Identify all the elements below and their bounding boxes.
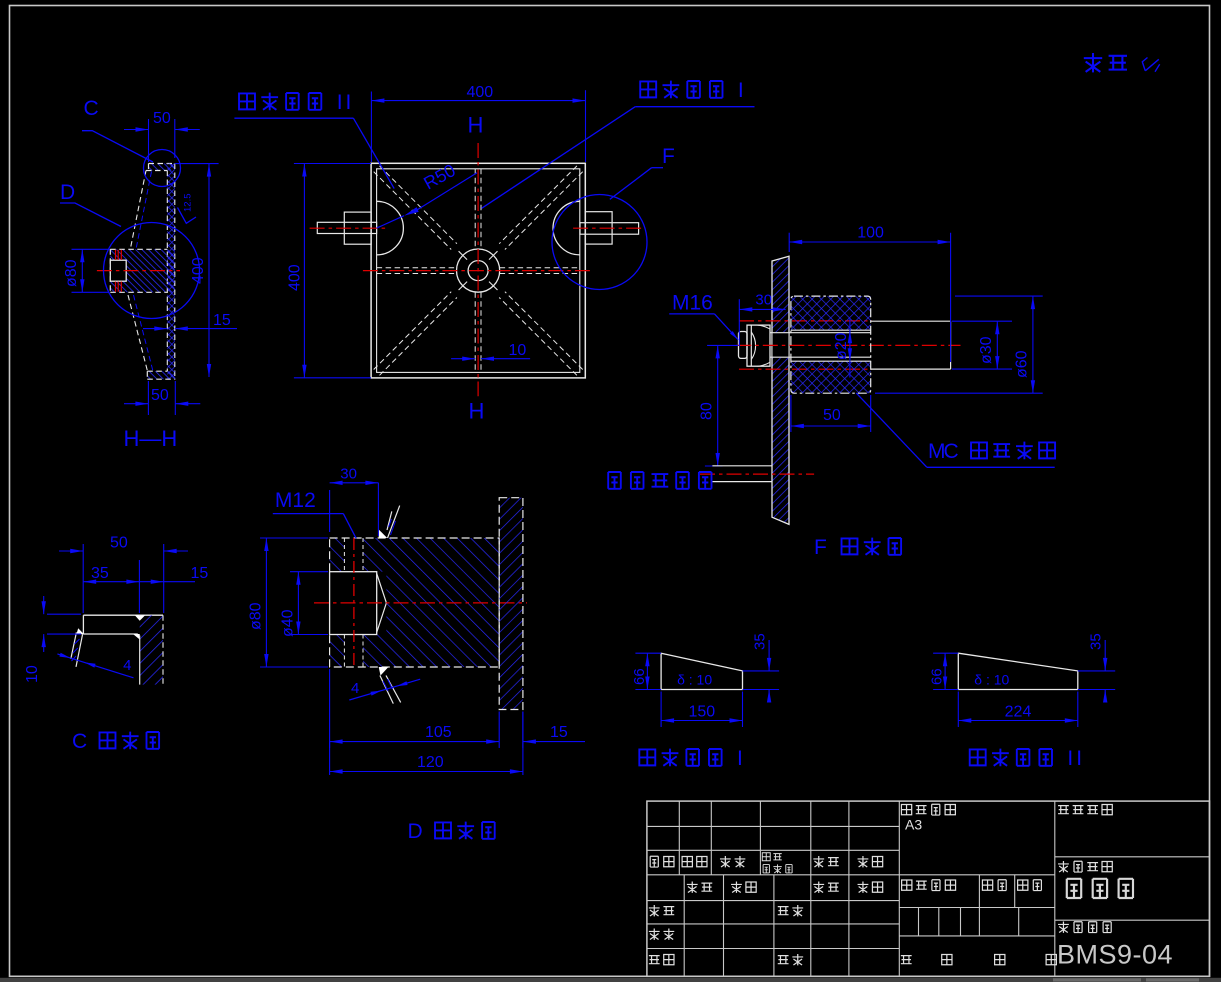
svg-text:ø60: ø60 bbox=[1014, 350, 1031, 378]
svg-text:I: I bbox=[1076, 747, 1082, 770]
svg-text:δ : 10: δ : 10 bbox=[974, 672, 1009, 688]
svg-text:100: 100 bbox=[857, 225, 884, 242]
svg-text:15: 15 bbox=[550, 724, 568, 741]
svg-text:105: 105 bbox=[425, 724, 452, 741]
svg-text:400: 400 bbox=[190, 257, 207, 284]
svg-text:F: F bbox=[662, 145, 675, 168]
svg-text:δ : 10: δ : 10 bbox=[677, 672, 712, 688]
svg-text:I: I bbox=[738, 79, 744, 102]
svg-text:50: 50 bbox=[110, 535, 128, 552]
svg-text:12.5: 12.5 bbox=[183, 194, 194, 213]
svg-text:50: 50 bbox=[151, 387, 169, 404]
svg-text:I: I bbox=[346, 91, 352, 114]
svg-text:35: 35 bbox=[1088, 633, 1105, 650]
svg-text:50: 50 bbox=[153, 110, 171, 127]
svg-text:ø80: ø80 bbox=[248, 602, 265, 630]
svg-text:50: 50 bbox=[823, 407, 841, 424]
svg-text:D: D bbox=[408, 820, 423, 843]
svg-text:30: 30 bbox=[340, 466, 357, 483]
svg-text:66: 66 bbox=[631, 668, 648, 685]
svg-text:D: D bbox=[60, 181, 75, 204]
svg-text:15: 15 bbox=[191, 565, 209, 582]
svg-text:F: F bbox=[814, 536, 827, 559]
svg-text:120: 120 bbox=[417, 754, 444, 771]
svg-text:4: 4 bbox=[123, 657, 131, 674]
svg-text:A3: A3 bbox=[905, 817, 922, 833]
svg-text:ø80: ø80 bbox=[63, 259, 80, 287]
svg-text:ø30: ø30 bbox=[978, 336, 995, 364]
svg-text:10: 10 bbox=[24, 665, 41, 683]
svg-text:BMS9-04: BMS9-04 bbox=[1057, 940, 1173, 970]
svg-text:15: 15 bbox=[213, 312, 231, 329]
svg-text:10: 10 bbox=[509, 342, 527, 359]
svg-text:150: 150 bbox=[688, 704, 715, 721]
svg-text:M16: M16 bbox=[672, 292, 713, 315]
svg-text:I: I bbox=[337, 91, 343, 114]
svg-text:I: I bbox=[1067, 747, 1073, 770]
svg-text:C: C bbox=[72, 730, 87, 753]
svg-text:35: 35 bbox=[91, 565, 109, 582]
svg-text:H—H: H—H bbox=[124, 426, 178, 451]
svg-text:35: 35 bbox=[752, 633, 769, 650]
svg-text:ø20: ø20 bbox=[833, 332, 850, 360]
svg-text:4: 4 bbox=[351, 680, 359, 697]
svg-text:400: 400 bbox=[287, 264, 304, 291]
svg-text:C: C bbox=[84, 97, 99, 120]
svg-text:30: 30 bbox=[755, 292, 772, 309]
svg-text:80: 80 bbox=[699, 402, 716, 420]
svg-text:I: I bbox=[737, 747, 743, 770]
svg-text:400: 400 bbox=[467, 84, 494, 101]
svg-text:H: H bbox=[468, 113, 484, 138]
svg-text:C: C bbox=[944, 440, 959, 463]
svg-text:M12: M12 bbox=[275, 489, 316, 512]
svg-text:H: H bbox=[469, 399, 485, 424]
svg-text:66: 66 bbox=[929, 668, 946, 685]
svg-text:ø40: ø40 bbox=[280, 609, 297, 637]
svg-text:224: 224 bbox=[1005, 704, 1032, 721]
